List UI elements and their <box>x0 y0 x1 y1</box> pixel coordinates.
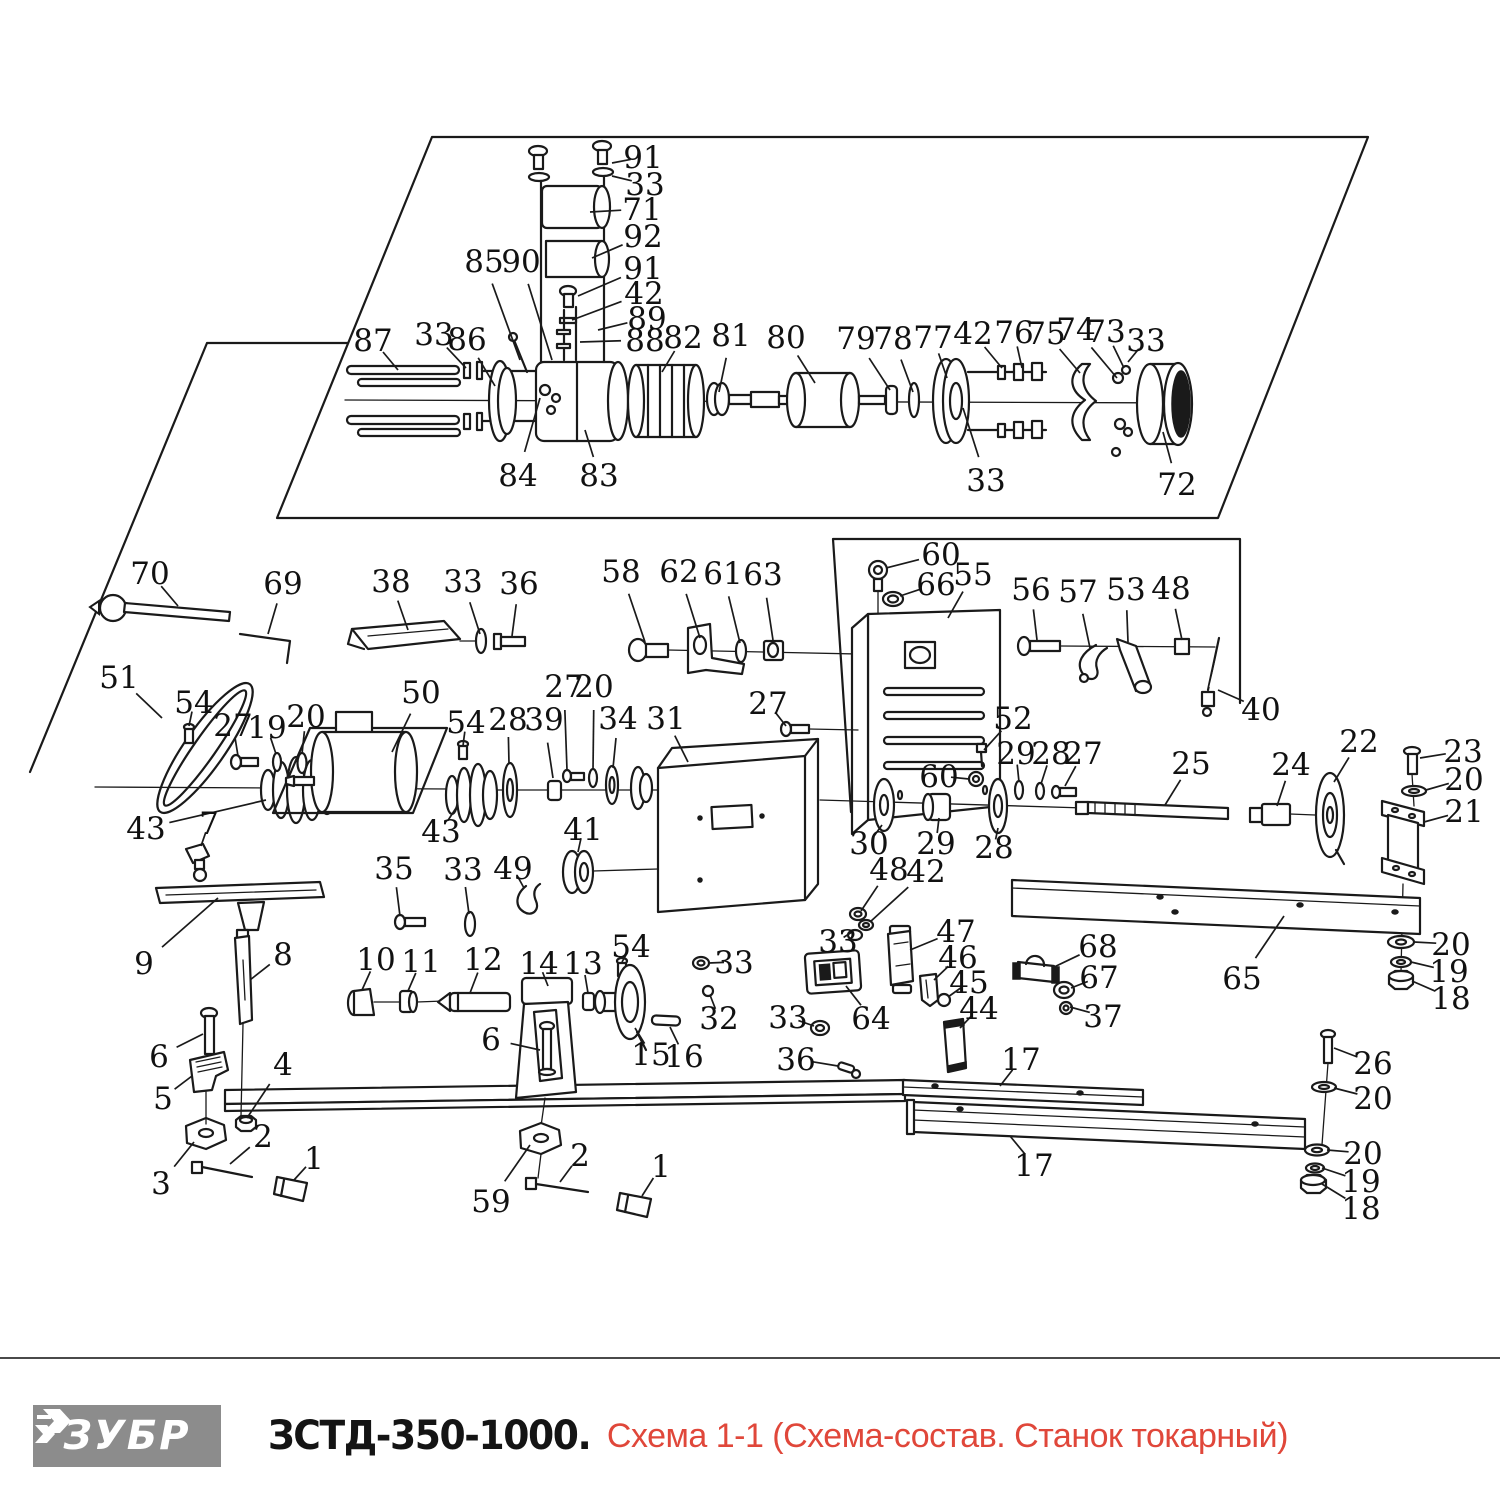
zubr-arrow-icon <box>33 1405 79 1449</box>
callout-42: 42 <box>953 316 992 352</box>
callout-82: 82 <box>663 320 702 356</box>
part-17-rail-upper <box>903 1080 1143 1105</box>
callout-16: 16 <box>664 1039 703 1075</box>
headstock-assembly <box>345 141 1192 456</box>
callout-53: 53 <box>1106 572 1145 608</box>
part-63-nut <box>764 641 783 660</box>
callout-33: 33 <box>443 852 482 888</box>
callout-36: 36 <box>499 566 538 602</box>
callout-66: 66 <box>916 567 955 603</box>
callout-20: 20 <box>1353 1081 1392 1117</box>
part-86-flange <box>489 361 516 441</box>
part-17-rail-lower <box>907 1100 1305 1149</box>
callout-33: 33 <box>443 564 482 600</box>
callout-8: 8 <box>273 937 293 973</box>
callout-18: 18 <box>1431 981 1470 1017</box>
callout-17: 17 <box>1014 1148 1053 1184</box>
callout-62: 62 <box>659 554 698 590</box>
callout-73: 73 <box>1086 314 1125 350</box>
callout-81: 81 <box>711 318 750 354</box>
callout-51: 51 <box>99 660 138 696</box>
footer: ЗУБР ЗСТД-350-1000. Схема 1-1 (Схема-сос… <box>0 1357 1500 1500</box>
callout-33: 33 <box>818 924 857 960</box>
callout-63: 63 <box>743 557 782 593</box>
callout-36: 36 <box>776 1042 815 1078</box>
part-82-pulley <box>628 365 704 437</box>
model-number: ЗСТД-350-1000. <box>268 1413 590 1459</box>
callout-22: 22 <box>1339 724 1378 760</box>
callout-42: 42 <box>906 854 945 890</box>
callout-32: 32 <box>699 1001 738 1037</box>
callout-34: 34 <box>598 701 637 737</box>
part-47-bracket <box>888 926 913 993</box>
part-2-rod <box>192 1162 252 1177</box>
callout-67: 67 <box>1079 960 1118 996</box>
callout-39: 39 <box>524 702 563 738</box>
callout-52: 52 <box>993 701 1032 737</box>
callout-2: 2 <box>570 1138 590 1174</box>
callout-12: 12 <box>463 942 502 978</box>
callout-83: 83 <box>579 458 618 494</box>
callout-61: 61 <box>703 556 742 592</box>
callout-17: 17 <box>1001 1042 1040 1078</box>
callout-79: 79 <box>836 321 875 357</box>
callout-85: 85 <box>464 244 503 280</box>
part-70-wrench <box>90 595 230 621</box>
callout-38: 38 <box>371 564 410 600</box>
callout-43: 43 <box>126 811 165 847</box>
callout-20: 20 <box>286 699 325 735</box>
part-69-hexkey <box>240 634 290 663</box>
tool-rest-assembly <box>156 844 324 1201</box>
part-7-knob <box>186 844 209 881</box>
part-10-knob <box>348 989 400 1015</box>
callout-28: 28 <box>488 702 527 738</box>
part-5-clamp <box>190 1052 228 1092</box>
callout-88: 88 <box>625 323 664 359</box>
brand-text: ЗУБР <box>63 1416 190 1456</box>
callout-90: 90 <box>501 244 540 280</box>
callout-49: 49 <box>493 851 532 887</box>
part-12-barrel <box>438 993 510 1011</box>
callout-92: 92 <box>623 219 662 255</box>
callout-87: 87 <box>353 323 392 359</box>
part-21-bracket <box>1382 801 1424 884</box>
part-87-rods <box>347 366 460 436</box>
callout-48: 48 <box>1151 571 1190 607</box>
callout-86: 86 <box>447 322 486 358</box>
part-41-bearing <box>563 851 658 893</box>
callout-54: 54 <box>174 685 213 721</box>
callout-43: 43 <box>421 814 460 850</box>
callout-78: 78 <box>873 321 912 357</box>
part-22-handwheel <box>1316 773 1344 864</box>
callout-55: 55 <box>953 557 992 593</box>
callout-11: 11 <box>401 944 440 980</box>
callouts: 9133719285909142898882818079787742767574… <box>99 140 1483 1227</box>
part-71-box <box>542 186 610 228</box>
callout-56: 56 <box>1011 572 1050 608</box>
callout-54: 54 <box>611 929 650 965</box>
callout-69: 69 <box>263 566 302 602</box>
callout-40: 40 <box>1241 692 1280 728</box>
callout-57: 57 <box>1058 574 1097 610</box>
part-9-rest <box>156 882 324 930</box>
callout-21: 21 <box>1444 794 1483 830</box>
callout-24: 24 <box>1271 747 1310 783</box>
tools-row <box>90 595 1220 716</box>
callout-84: 84 <box>498 458 537 494</box>
callout-80: 80 <box>766 320 805 356</box>
callout-58: 58 <box>601 554 640 590</box>
callout-48: 48 <box>869 852 908 888</box>
callout-60: 60 <box>919 759 958 795</box>
part-72-faceplate <box>1137 363 1192 445</box>
callout-59: 59 <box>471 1184 510 1220</box>
part-57-hook <box>1080 645 1107 682</box>
callout-41: 41 <box>563 812 602 848</box>
part-1-handle <box>274 1177 307 1201</box>
part-8-post <box>235 930 252 1024</box>
callout-20: 20 <box>1444 762 1483 798</box>
callout-29: 29 <box>996 736 1035 772</box>
callout-25: 25 <box>1171 746 1210 782</box>
callout-33: 33 <box>768 1000 807 1036</box>
callout-50: 50 <box>401 675 440 711</box>
part-68-clamp <box>1013 956 1059 983</box>
part-80-armature <box>787 373 885 427</box>
callout-6: 6 <box>481 1022 501 1058</box>
callout-7: 7 <box>199 806 219 842</box>
callout-33: 33 <box>714 945 753 981</box>
callout-2: 2 <box>253 1119 273 1155</box>
callout-27: 27 <box>748 686 787 722</box>
callout-44: 44 <box>959 991 998 1027</box>
callout-13: 13 <box>563 946 602 982</box>
callout-6: 6 <box>149 1039 169 1075</box>
callout-35: 35 <box>374 851 413 887</box>
callout-10: 10 <box>356 942 395 978</box>
callout-33: 33 <box>966 463 1005 499</box>
callout-18: 18 <box>1341 1191 1380 1227</box>
callout-19: 19 <box>247 710 286 746</box>
part-58-bolt <box>629 639 668 661</box>
part-83-headstock <box>536 362 628 441</box>
callout-5: 5 <box>153 1081 173 1117</box>
callout-1: 1 <box>304 1141 324 1177</box>
callout-1: 1 <box>651 1149 671 1185</box>
part-49-hook <box>517 884 540 914</box>
callout-64: 64 <box>851 1001 890 1037</box>
callout-37: 37 <box>1083 999 1122 1035</box>
callout-20: 20 <box>574 669 613 705</box>
part-38-rest-blade <box>348 621 460 649</box>
part-40-pin <box>1202 638 1220 716</box>
callout-9: 9 <box>134 946 154 982</box>
callout-27: 27 <box>1063 736 1102 772</box>
parts-diagram-page: 9133719285909142898882818079787742767574… <box>0 0 1500 1500</box>
part-65-plate <box>1012 880 1420 934</box>
document-title: ЗСТД-350-1000. Схема 1-1 (Схема-состав. … <box>268 1405 1288 1467</box>
callout-70: 70 <box>130 556 169 592</box>
callout-28: 28 <box>974 830 1013 866</box>
part-25-shaft <box>1076 802 1228 819</box>
callout-77: 77 <box>913 320 952 356</box>
callout-33: 33 <box>1126 323 1165 359</box>
callout-65: 65 <box>1222 961 1261 997</box>
callout-3: 3 <box>151 1166 171 1202</box>
callout-4: 4 <box>273 1047 293 1083</box>
zubr-logo: ЗУБР <box>33 1405 221 1467</box>
callout-54: 54 <box>446 705 485 741</box>
callout-31: 31 <box>646 701 685 737</box>
exploded-diagram: 9133719285909142898882818079787742767574… <box>0 0 1500 1500</box>
part-77-flange <box>933 359 1046 443</box>
callout-14: 14 <box>519 946 558 982</box>
callout-26: 26 <box>1353 1046 1392 1082</box>
part-60-eyebolt-bottom <box>969 772 983 786</box>
scheme-subtitle: Схема 1-1 (Схема-состав. Станок токарный… <box>607 1417 1288 1456</box>
callout-72: 72 <box>1157 467 1196 503</box>
part-56-bolt <box>1018 637 1060 655</box>
part-60-eyebolt-top <box>869 561 903 614</box>
part-92-cylinder <box>546 241 609 277</box>
